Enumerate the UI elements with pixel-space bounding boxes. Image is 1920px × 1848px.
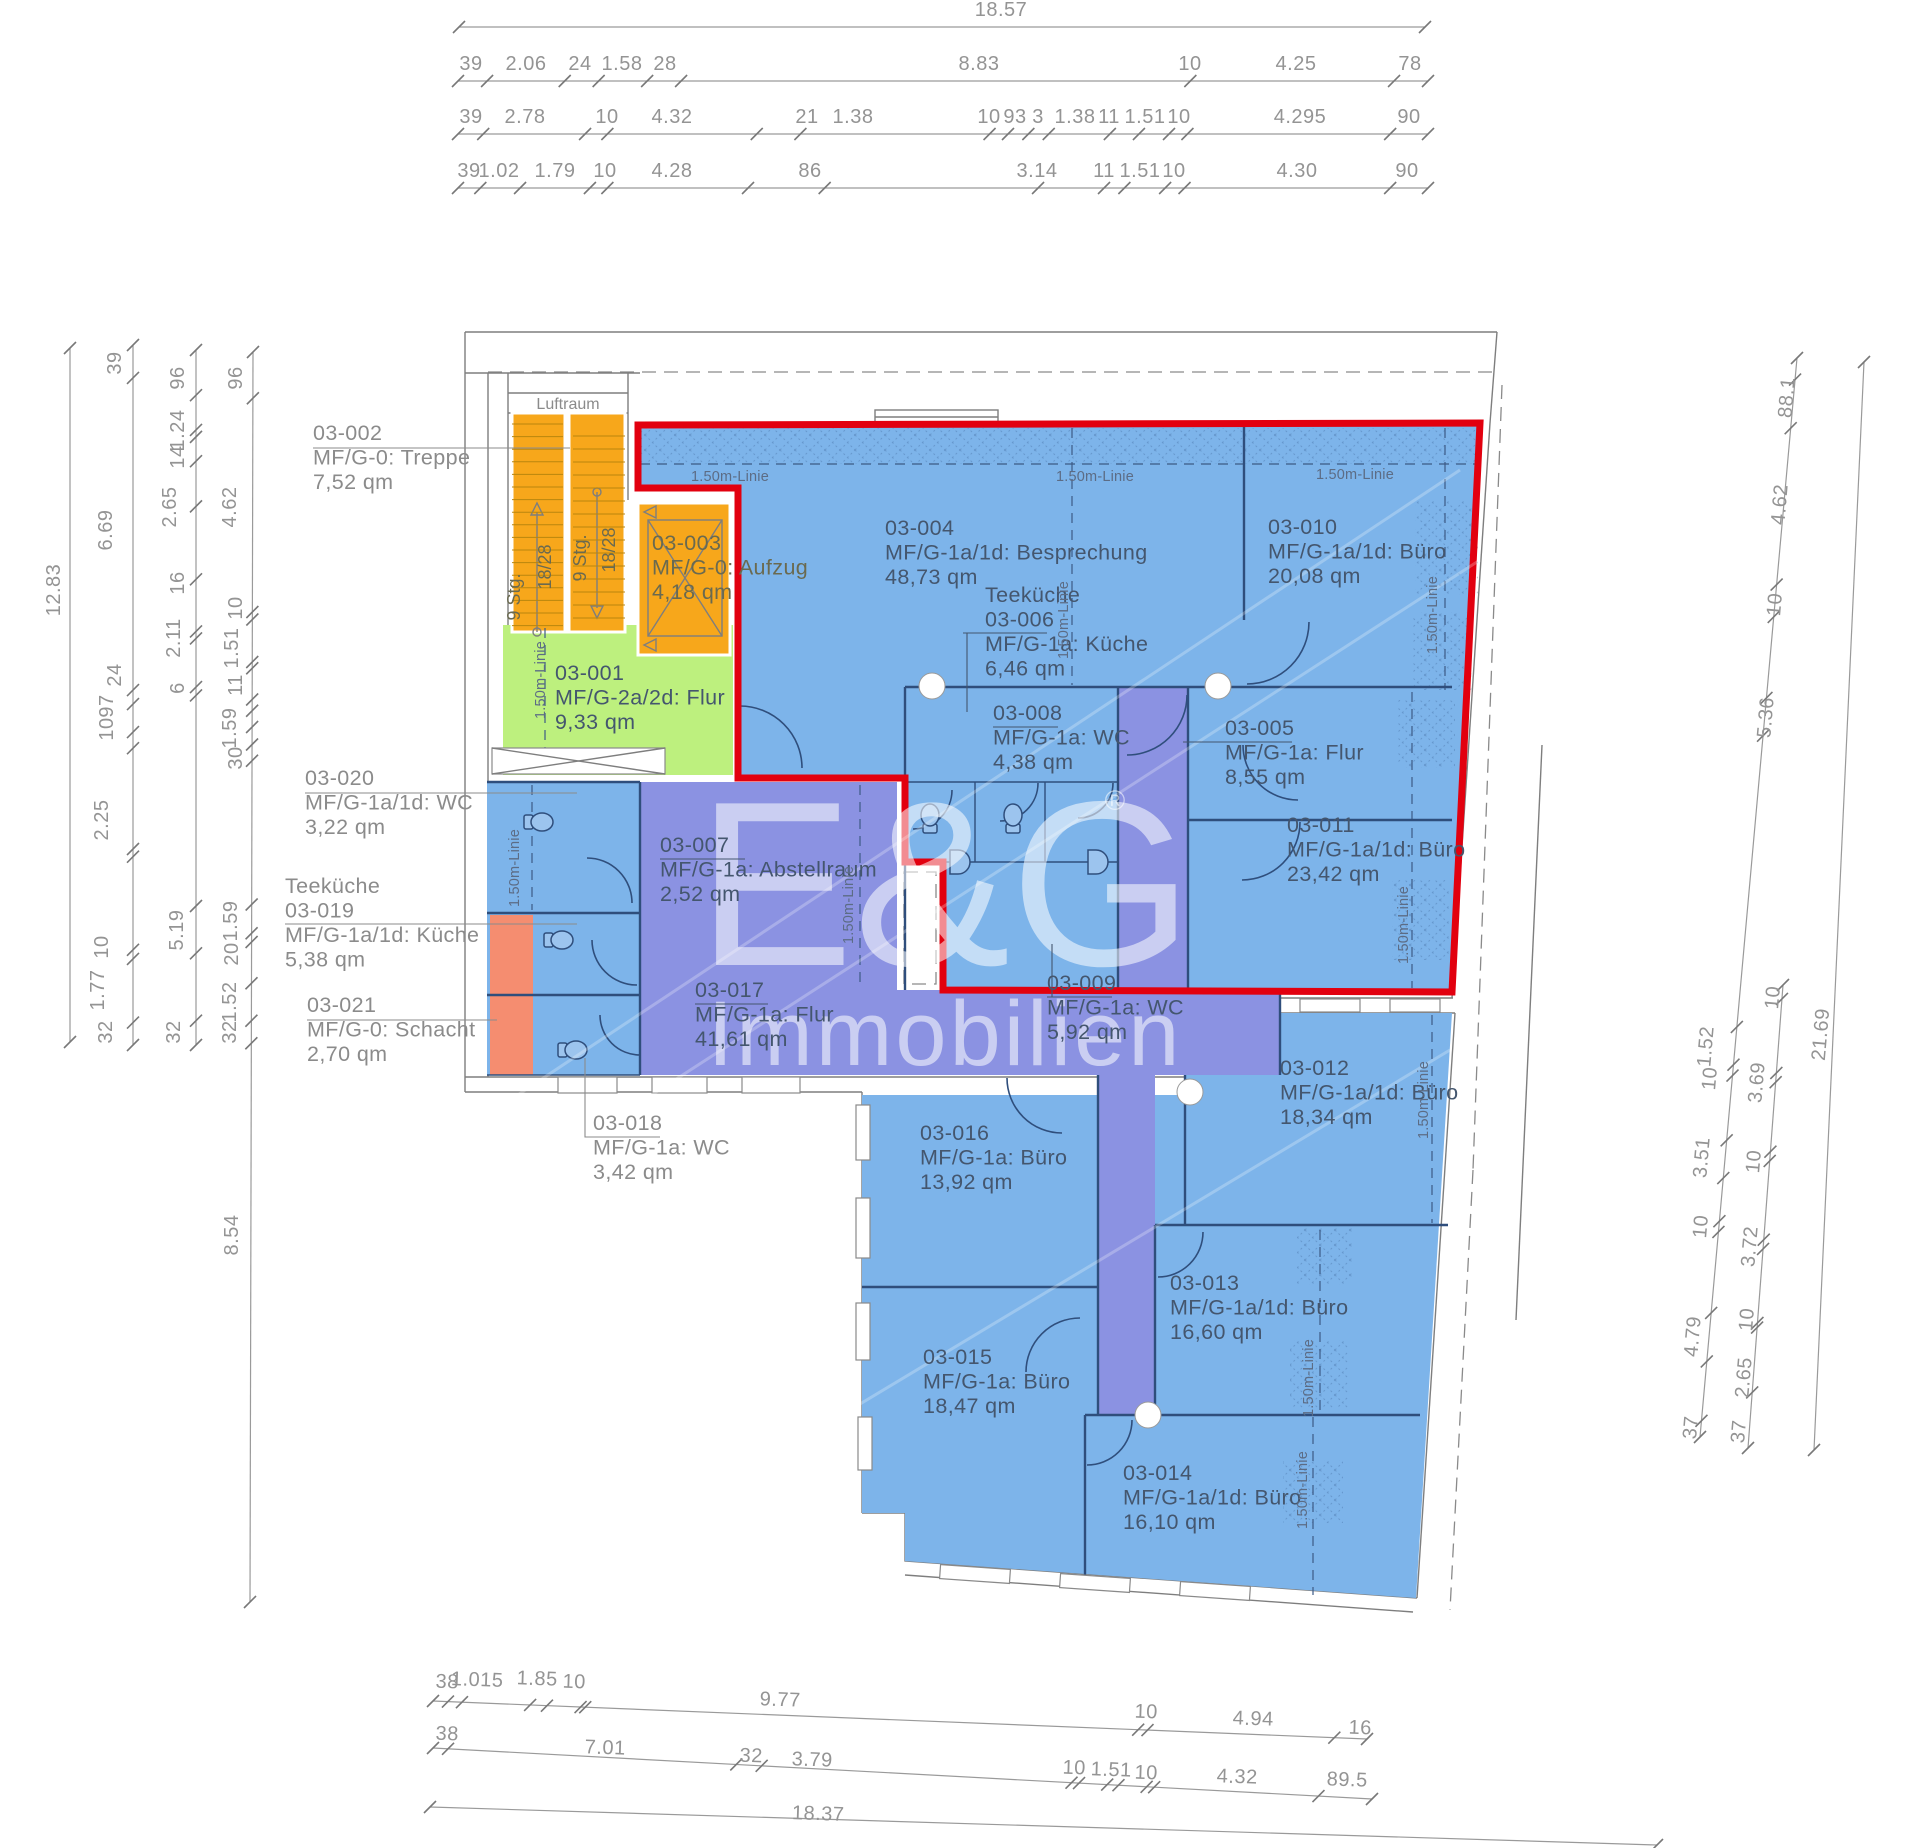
luftraum-label: Luftraum [536, 396, 599, 413]
dimension-label: 5.36 [1753, 696, 1778, 739]
dimension-label: 10 [1698, 1066, 1722, 1091]
watermark-reg: ® [1105, 785, 1126, 816]
linie-label: 1.50m-Linie [841, 866, 857, 944]
dimension-label: 4.32 [652, 106, 693, 128]
linie-label: 1.50m-Linie [1056, 581, 1072, 659]
dimension-label: 21.69 [1808, 1007, 1834, 1061]
dimension-label: 12.83 [43, 564, 65, 617]
dimension-label: 10 [1062, 1757, 1086, 1780]
dimension-label: 32 [95, 1020, 117, 1043]
dimension-label: 96 [167, 366, 189, 389]
dimension-label: 2.06 [506, 53, 547, 75]
linie-label: 1.50m-Linie [1425, 576, 1441, 654]
dimension-label: 1.79 [535, 160, 576, 182]
linie-label: 1.50m-Linie [1396, 886, 1412, 964]
dimension-label: 11 [1098, 106, 1120, 128]
dimension-label: 4.94 [1232, 1707, 1274, 1730]
dimension-label: 11 [1093, 160, 1115, 182]
room-label: Teeküche03-019MF/G-1a/1d: Küche5,38 qm [285, 874, 479, 972]
dimension-label: 10 [977, 106, 1000, 128]
linie-label: 1.50m-Linie [1301, 1339, 1317, 1417]
dimension-label: 93 [1003, 106, 1026, 128]
dimension-label: 6 [167, 682, 189, 694]
dimension-label: 20 [221, 942, 243, 965]
dimension-label: 8.54 [221, 1215, 243, 1256]
stair-label: 9 Stg. [570, 534, 590, 581]
dimension-label: 2.65 [159, 487, 181, 528]
dimension-label: 78 [1398, 53, 1421, 75]
dimension-label: 1.85 [516, 1667, 558, 1690]
dimension-label: 4.28 [652, 160, 693, 182]
dimension-label: 4.62 [1767, 483, 1792, 526]
dimension-label: 2.65 [1731, 1356, 1756, 1399]
dimension-label: 16 [167, 571, 189, 594]
dimension-label: 1.52 [1693, 1025, 1718, 1068]
dimension-label: 86 [798, 160, 821, 182]
room-label: 03-018MF/G-1a: WC3,42 qm [593, 1111, 730, 1184]
dimension-label: 89.5 [1326, 1768, 1368, 1791]
dimension-label: 7.01 [584, 1736, 626, 1759]
dimension-label: 10 [1761, 985, 1785, 1010]
dimension-label: 3.72 [1737, 1225, 1762, 1268]
dimension-label: 10 [1162, 160, 1185, 182]
dimension-label: 10 [1134, 1762, 1158, 1785]
dimension-label: 4.25 [1276, 53, 1317, 75]
dimension-label: 10 [1689, 1214, 1713, 1239]
dimension-label: 24 [568, 53, 591, 75]
dimension-label: 24 [104, 663, 126, 686]
stair-label: 9 Stg. [504, 573, 524, 620]
room-label: 03-020MF/G-1a/1d: WC3,22 qm [305, 766, 473, 839]
stair-label: 18/28 [599, 527, 619, 572]
dimension-label: 30 [225, 746, 247, 769]
dimension-label: 3.69 [1744, 1061, 1769, 1104]
dimension-label: 1.38 [1055, 106, 1096, 128]
dimension-label: 21 [795, 106, 818, 128]
dimension-label: 90 [1397, 106, 1420, 128]
dimension-label: 39 [459, 53, 482, 75]
dimension-chain [1814, 362, 1864, 1450]
dimension-label: 2.25 [91, 800, 113, 841]
dimension-label: 4.79 [1680, 1315, 1705, 1358]
dimension-label: 3.79 [791, 1748, 833, 1771]
dimension-label: 16 [1348, 1717, 1372, 1740]
dimension-label: 10 [1167, 106, 1190, 128]
linie-label: 1.50m-Linie [1316, 467, 1394, 483]
dimension-label: 1.51 [221, 628, 243, 669]
dimension-label: 10 [1178, 53, 1201, 75]
dimension-label: 32 [163, 1020, 185, 1043]
dimension-label: 1.58 [602, 53, 643, 75]
dimension-label: 88.1 [1774, 376, 1799, 419]
dimension-label: 96 [225, 366, 247, 389]
dimension-label: 3.14 [1017, 160, 1058, 182]
dimension-label: 2.11 [163, 618, 185, 657]
dimension-label: 32 [219, 1020, 241, 1043]
dimension-label: 18.57 [975, 0, 1028, 21]
dimension-label: 1.59 [220, 901, 242, 942]
linie-label: 1.50m-Linie [1056, 469, 1134, 485]
dimension-label: 10 [1742, 1149, 1766, 1174]
dimension-label: 1.52 [219, 982, 241, 1023]
dimension-label: 37 [1727, 1419, 1751, 1444]
linie-label: 1.50m-Linie [1416, 1061, 1432, 1139]
dimension-label: 10 [593, 160, 616, 182]
dimension-tick [1651, 1839, 1663, 1848]
dimension-label: 18.37 [792, 1802, 845, 1826]
dimension-label: 6.69 [95, 510, 117, 551]
dimension-chain [433, 1701, 1367, 1739]
dimension-label: 10 [562, 1671, 586, 1694]
dimension-label: 10 [1735, 1307, 1759, 1332]
dimension-label: 1.24 [167, 410, 189, 451]
dimension-label: 1.51 [1120, 160, 1161, 182]
linie-label: 1.50m-Linie [507, 829, 523, 907]
linie-label: 1.50m-Linie [691, 469, 769, 485]
dimension-label: 4.295 [1274, 106, 1327, 128]
dimension-chain [430, 1807, 1657, 1845]
dimension-label: 1.77 [87, 970, 109, 1011]
dimension-label: 97 [96, 694, 118, 717]
dimension-label: 39 [104, 351, 126, 374]
linie-label: 1.50m-Linie [533, 641, 549, 719]
dimension-label: 3.51 [1689, 1136, 1714, 1179]
dimension-label: 90 [1395, 160, 1418, 182]
dimension-label: 5.19 [166, 910, 188, 951]
dimension-label: 14 [167, 445, 189, 468]
dimension-label: 1.59 [219, 708, 241, 749]
dimension-label: 10 [1134, 1701, 1158, 1724]
dimension-label: 10 [1763, 592, 1787, 617]
dimension-label: 1.38 [833, 106, 874, 128]
dimension-label: 2.78 [505, 106, 546, 128]
floor-plan-page: E&G ® Immobilien Luftraum 03-002MF/G-0: … [0, 0, 1920, 1848]
dimension-label: 8.83 [959, 53, 1000, 75]
stair-label: 18/28 [535, 544, 555, 589]
dimension-label: 39 [457, 160, 480, 182]
dimension-label: 10 [96, 717, 118, 740]
dimension-label: 32 [739, 1745, 763, 1768]
dimension-label: 38 [435, 1723, 459, 1746]
floor-plan-drawing: E&G ® Immobilien Luftraum 03-002MF/G-0: … [0, 0, 1920, 1848]
dimension-label: 28 [653, 53, 676, 75]
dimension-label: 10 [91, 935, 113, 958]
dimension-label: 4.32 [1216, 1765, 1258, 1788]
room-label: 03-002MF/G-0: Treppe7,52 qm [313, 421, 470, 494]
dimension-label: 37 [1679, 1415, 1703, 1440]
dimension-label: 9.77 [759, 1688, 801, 1711]
linie-label: 1.50m-Linie [1295, 1451, 1311, 1529]
dimension-label: 1.51 [1125, 106, 1166, 128]
dimension-chain [250, 352, 253, 1602]
dimension-label: 3 [1032, 106, 1044, 128]
dimension-label: 4.30 [1277, 160, 1318, 182]
dimension-label: 39 [459, 106, 482, 128]
dimension-label: 1.51 [1090, 1758, 1132, 1781]
dimension-label: 1.015 [451, 1668, 504, 1692]
dimension-label: 4.62 [219, 487, 241, 528]
dimension-label: 1.02 [479, 160, 520, 182]
room-label: 03-021MF/G-0: Schacht2,70 qm [307, 993, 476, 1066]
dimension-label: 11 [225, 674, 247, 696]
dimension-label: 10 [595, 106, 618, 128]
dimension-label: 10 [225, 596, 247, 619]
